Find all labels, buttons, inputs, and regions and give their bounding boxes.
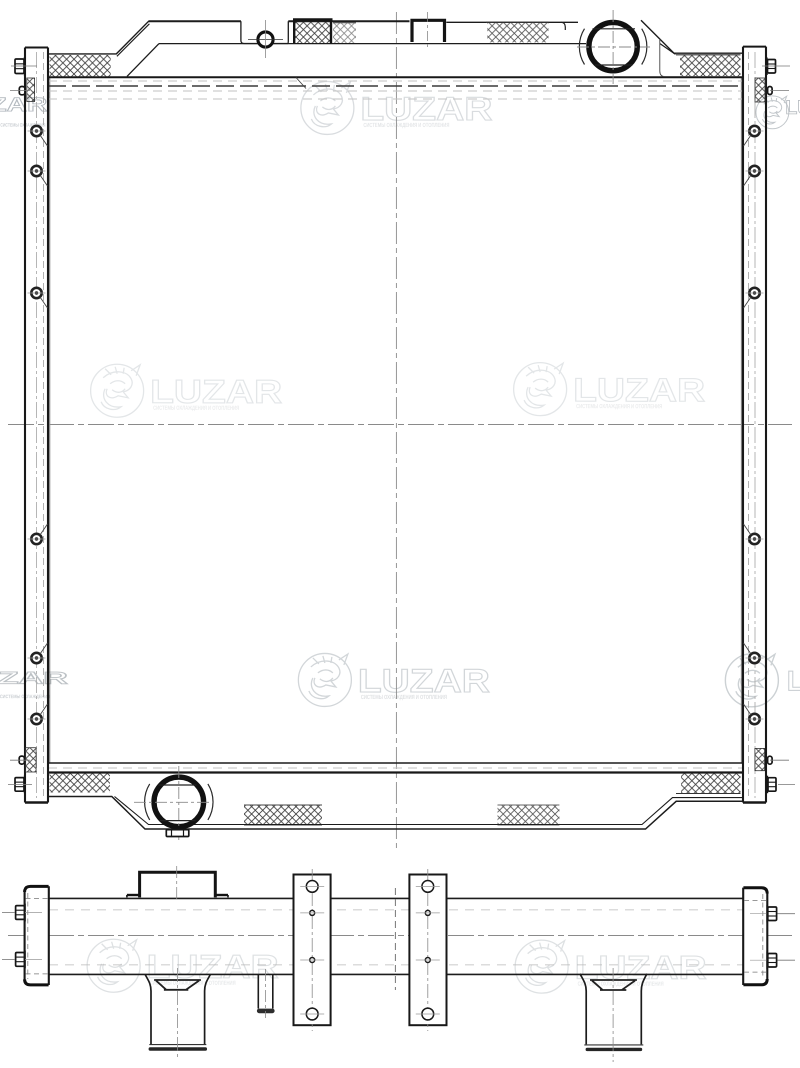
svg-text:LUZAR: LUZAR — [150, 373, 282, 410]
svg-text:LU: LU — [785, 97, 800, 119]
svg-text:LUZAR: LUZAR — [358, 662, 490, 699]
svg-text:СИСТЕМЫ ОХЛАЖДЕНИЯ И ОТОПЛЕНИЯ: СИСТЕМЫ ОХЛАЖДЕНИЯ И ОТОПЛЕНИЯ — [153, 405, 239, 412]
svg-text:LUZAR: LUZAR — [573, 371, 705, 408]
svg-text:ZAR: ZAR — [0, 94, 47, 116]
svg-text:ZAR: ZAR — [0, 669, 68, 688]
svg-text:СИСТЕМЫ ОХЛАЖДЕНИЯ И ОТОПЛЕНИЯ: СИСТЕМЫ ОХЛАЖДЕНИЯ И ОТОПЛЕНИЯ — [363, 122, 449, 129]
svg-text:СИСТЕМЫ ОХЛАЖДЕНИЯ И ОТОПЛЕНИЯ: СИСТЕМЫ ОХЛАЖДЕНИЯ И ОТОПЛЕНИЯ — [578, 981, 664, 988]
svg-text:СИСТЕМЫ ОХЛАЖДЕНИЯ И ОТОПЛЕНИЯ: СИСТЕМЫ ОХЛАЖДЕНИЯ И ОТОПЛЕНИЯ — [576, 403, 662, 410]
svg-text:СИСТЕМЫ ОХЛАЖДЕНИЯ И ОТОПЛЕНИЯ: СИСТЕМЫ ОХЛАЖДЕНИЯ И ОТОПЛЕНИЯ — [361, 694, 447, 701]
svg-text:LUZAR: LUZAR — [360, 90, 492, 127]
svg-text:LU: LU — [787, 665, 800, 696]
